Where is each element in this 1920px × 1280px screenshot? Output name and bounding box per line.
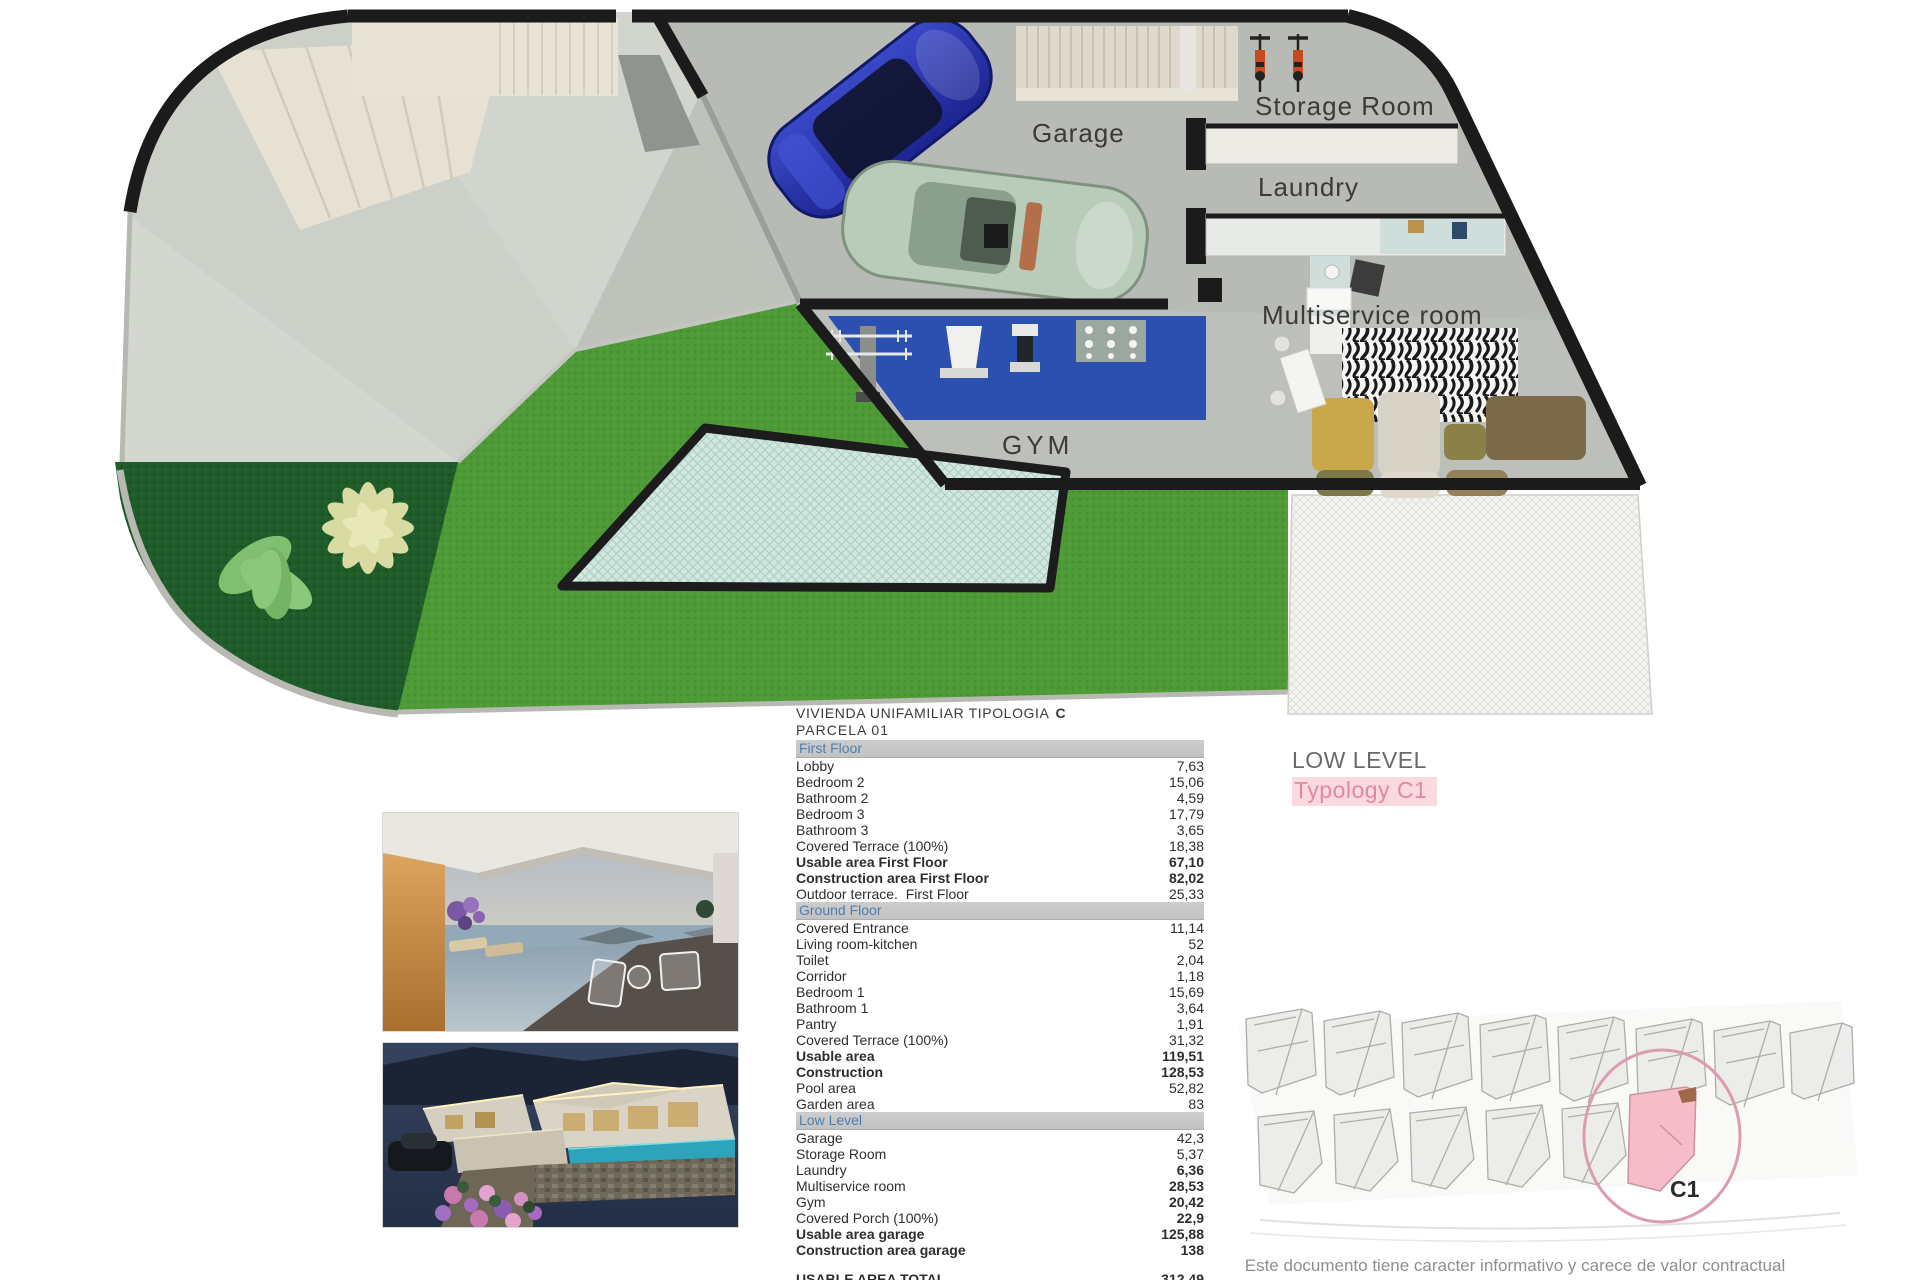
section-header: First Floor <box>796 740 1204 758</box>
level-name: LOW LEVEL <box>1292 747 1437 774</box>
row-label: Bathroom 3 <box>796 822 868 838</box>
table-row: Laundry6,36 <box>796 1162 1204 1178</box>
table-row: Living room-kitchen52 <box>796 936 1204 952</box>
table-row: Covered Entrance11,14 <box>796 920 1204 936</box>
row-label: Garage <box>796 1130 843 1146</box>
row-label: Construction area garage <box>796 1242 966 1258</box>
row-label: Laundry <box>796 1162 847 1178</box>
section-header: Low Level <box>796 1112 1204 1130</box>
table-row: Bathroom 13,64 <box>796 1000 1204 1016</box>
table-row: Multiservice room28,53 <box>796 1178 1204 1194</box>
row-label: Bathroom 2 <box>796 790 868 806</box>
photo-terrace-pool <box>382 812 739 1032</box>
row-value: 52,82 <box>1169 1080 1204 1096</box>
table-row: Usable area First Floor67,10 <box>796 854 1204 870</box>
table-row: Storage Room5,37 <box>796 1146 1204 1162</box>
row-label: USABLE AREA TOTAL <box>796 1271 945 1280</box>
row-value: 52 <box>1188 936 1204 952</box>
area-table: VIVIENDA UNIFAMILIAR TIPOLOGIAC PARCELA … <box>796 704 1204 1280</box>
table-row: Toilet2,04 <box>796 952 1204 968</box>
row-value: 67,10 <box>1169 854 1204 870</box>
table-row: Lobby7,63 <box>796 758 1204 774</box>
row-value: 82,02 <box>1169 870 1204 886</box>
row-label: Covered Terrace (100%) <box>796 838 948 854</box>
garage-staircase <box>1016 26 1238 101</box>
dumbbell-rack-icon <box>1076 320 1146 362</box>
floor-plan: Garage Storage Room Laundry Multiservice… <box>0 0 1920 760</box>
row-label: Multiservice room <box>796 1178 906 1194</box>
row-label: Living room-kitchen <box>796 936 917 952</box>
row-label: Corridor <box>796 968 847 984</box>
label-multiservice-room: Multiservice room <box>1262 300 1483 330</box>
level-tag: LOW LEVEL Typology C1 <box>1292 747 1437 806</box>
terrace-plant <box>696 900 714 918</box>
row-label: Bathroom 1 <box>796 1000 868 1016</box>
table-row: Outdoor terrace. First Floor25,33 <box>796 886 1204 902</box>
row-label: Covered Entrance <box>796 920 909 936</box>
patio <box>1288 495 1652 714</box>
row-label: Covered Terrace (100%) <box>796 1032 948 1048</box>
typology-badge: Typology C1 <box>1292 777 1437 806</box>
table-row: Garden area83 <box>796 1096 1204 1112</box>
disclaimer-text: Este documento tiene caracter informativ… <box>1235 1256 1795 1276</box>
row-value: 20,42 <box>1169 1194 1204 1210</box>
table-title: VIVIENDA UNIFAMILIAR TIPOLOGIAC <box>796 704 1204 722</box>
row-value: 31,32 <box>1169 1032 1204 1048</box>
row-label: Construction <box>796 1064 883 1080</box>
section-header: Ground Floor <box>796 902 1204 920</box>
row-value: 42,3 <box>1177 1130 1204 1146</box>
table-row: USABLE AREA TOTAL312,49 <box>796 1271 1204 1280</box>
row-label: Toilet <box>796 952 829 968</box>
row-label: Garden area <box>796 1096 875 1112</box>
row-label: Lobby <box>796 758 834 774</box>
photo-villa-night <box>382 1042 739 1228</box>
row-label: Bedroom 3 <box>796 806 864 822</box>
row-value: 138 <box>1181 1242 1204 1258</box>
row-value: 312,49 <box>1161 1271 1204 1280</box>
table-row: Pool area52,82 <box>796 1080 1204 1096</box>
area-table-totals: USABLE AREA TOTAL312,49CONSTRUCTION AREA… <box>796 1271 1204 1280</box>
table-row: Bathroom 24,59 <box>796 790 1204 806</box>
row-label: Outdoor terrace. First Floor <box>796 886 969 902</box>
row-value: 15,06 <box>1169 774 1204 790</box>
table-row: Gym20,42 <box>796 1194 1204 1210</box>
row-label: Gym <box>796 1194 826 1210</box>
label-storage-room: Storage Room <box>1255 91 1435 121</box>
table-title-code: C <box>1055 705 1066 721</box>
row-value: 3,65 <box>1177 822 1204 838</box>
row-value: 4,59 <box>1177 790 1204 806</box>
row-value: 25,33 <box>1169 886 1204 902</box>
table-row: Covered Terrace (100%)18,38 <box>796 838 1204 854</box>
porch-pillar <box>984 224 1008 248</box>
label-garage: Garage <box>1032 118 1125 148</box>
row-value: 3,64 <box>1177 1000 1204 1016</box>
row-value: 18,38 <box>1169 838 1204 854</box>
row-label: Usable area First Floor <box>796 854 948 870</box>
stone-wall <box>533 1157 735 1203</box>
row-value: 128,53 <box>1161 1064 1204 1080</box>
table-row: Corridor1,18 <box>796 968 1204 984</box>
row-value: 11,14 <box>1170 920 1204 936</box>
row-value: 7,63 <box>1177 758 1204 774</box>
brochure-page: Garage Storage Room Laundry Multiservice… <box>0 0 1920 1280</box>
table-row: Bedroom 115,69 <box>796 984 1204 1000</box>
label-laundry: Laundry <box>1258 172 1359 202</box>
table-row: Bedroom 317,79 <box>796 806 1204 822</box>
row-label: Usable area garage <box>796 1226 924 1242</box>
row-value: 17,79 <box>1169 806 1204 822</box>
row-value: 22,9 <box>1177 1210 1204 1226</box>
row-label: Pool area <box>796 1080 856 1096</box>
table-subtitle: PARCELA 01 <box>796 722 1204 739</box>
table-row: Garage42,3 <box>796 1130 1204 1146</box>
table-title-text: VIVIENDA UNIFAMILIAR TIPOLOGIA <box>796 705 1049 721</box>
row-value: 119,51 <box>1162 1048 1204 1064</box>
area-table-sections: First FloorLobby7,63Bedroom 215,06Bathro… <box>796 740 1204 1258</box>
table-row: Covered Porch (100%)22,9 <box>796 1210 1204 1226</box>
row-label: Pantry <box>796 1016 836 1032</box>
row-label: Bedroom 1 <box>796 984 864 1000</box>
row-value: 15,69 <box>1169 984 1204 1000</box>
table-row: Covered Terrace (100%)31,32 <box>796 1032 1204 1048</box>
row-value: 1,18 <box>1177 968 1204 984</box>
table-row: Construction area garage138 <box>796 1242 1204 1258</box>
row-label: Construction area First Floor <box>796 870 989 886</box>
row-value: 125,88 <box>1161 1226 1204 1242</box>
table-row: Usable area119,51 <box>796 1048 1204 1064</box>
table-row: Construction128,53 <box>796 1064 1204 1080</box>
site-plan: C1 <box>1230 995 1870 1257</box>
row-value: 1,91 <box>1177 1016 1204 1032</box>
row-label: Covered Porch (100%) <box>796 1210 938 1226</box>
table-row: Bedroom 215,06 <box>796 774 1204 790</box>
row-value: 28,53 <box>1169 1178 1204 1194</box>
table-row: Usable area garage125,88 <box>796 1226 1204 1242</box>
row-label: Storage Room <box>796 1146 886 1162</box>
label-gym: GYM <box>1002 430 1073 460</box>
row-label: Usable area <box>796 1048 875 1064</box>
row-value: 6,36 <box>1177 1162 1204 1178</box>
row-value: 83 <box>1188 1096 1204 1112</box>
table-row: Construction area First Floor82,02 <box>796 870 1204 886</box>
table-row: Bathroom 33,65 <box>796 822 1204 838</box>
row-value: 2,04 <box>1177 952 1204 968</box>
table-row: Pantry1,91 <box>796 1016 1204 1032</box>
porch-pillar-2 <box>1198 278 1222 302</box>
row-value: 5,37 <box>1177 1146 1204 1162</box>
siteplan-unit-label: C1 <box>1670 1176 1700 1202</box>
row-label: Bedroom 2 <box>796 774 864 790</box>
